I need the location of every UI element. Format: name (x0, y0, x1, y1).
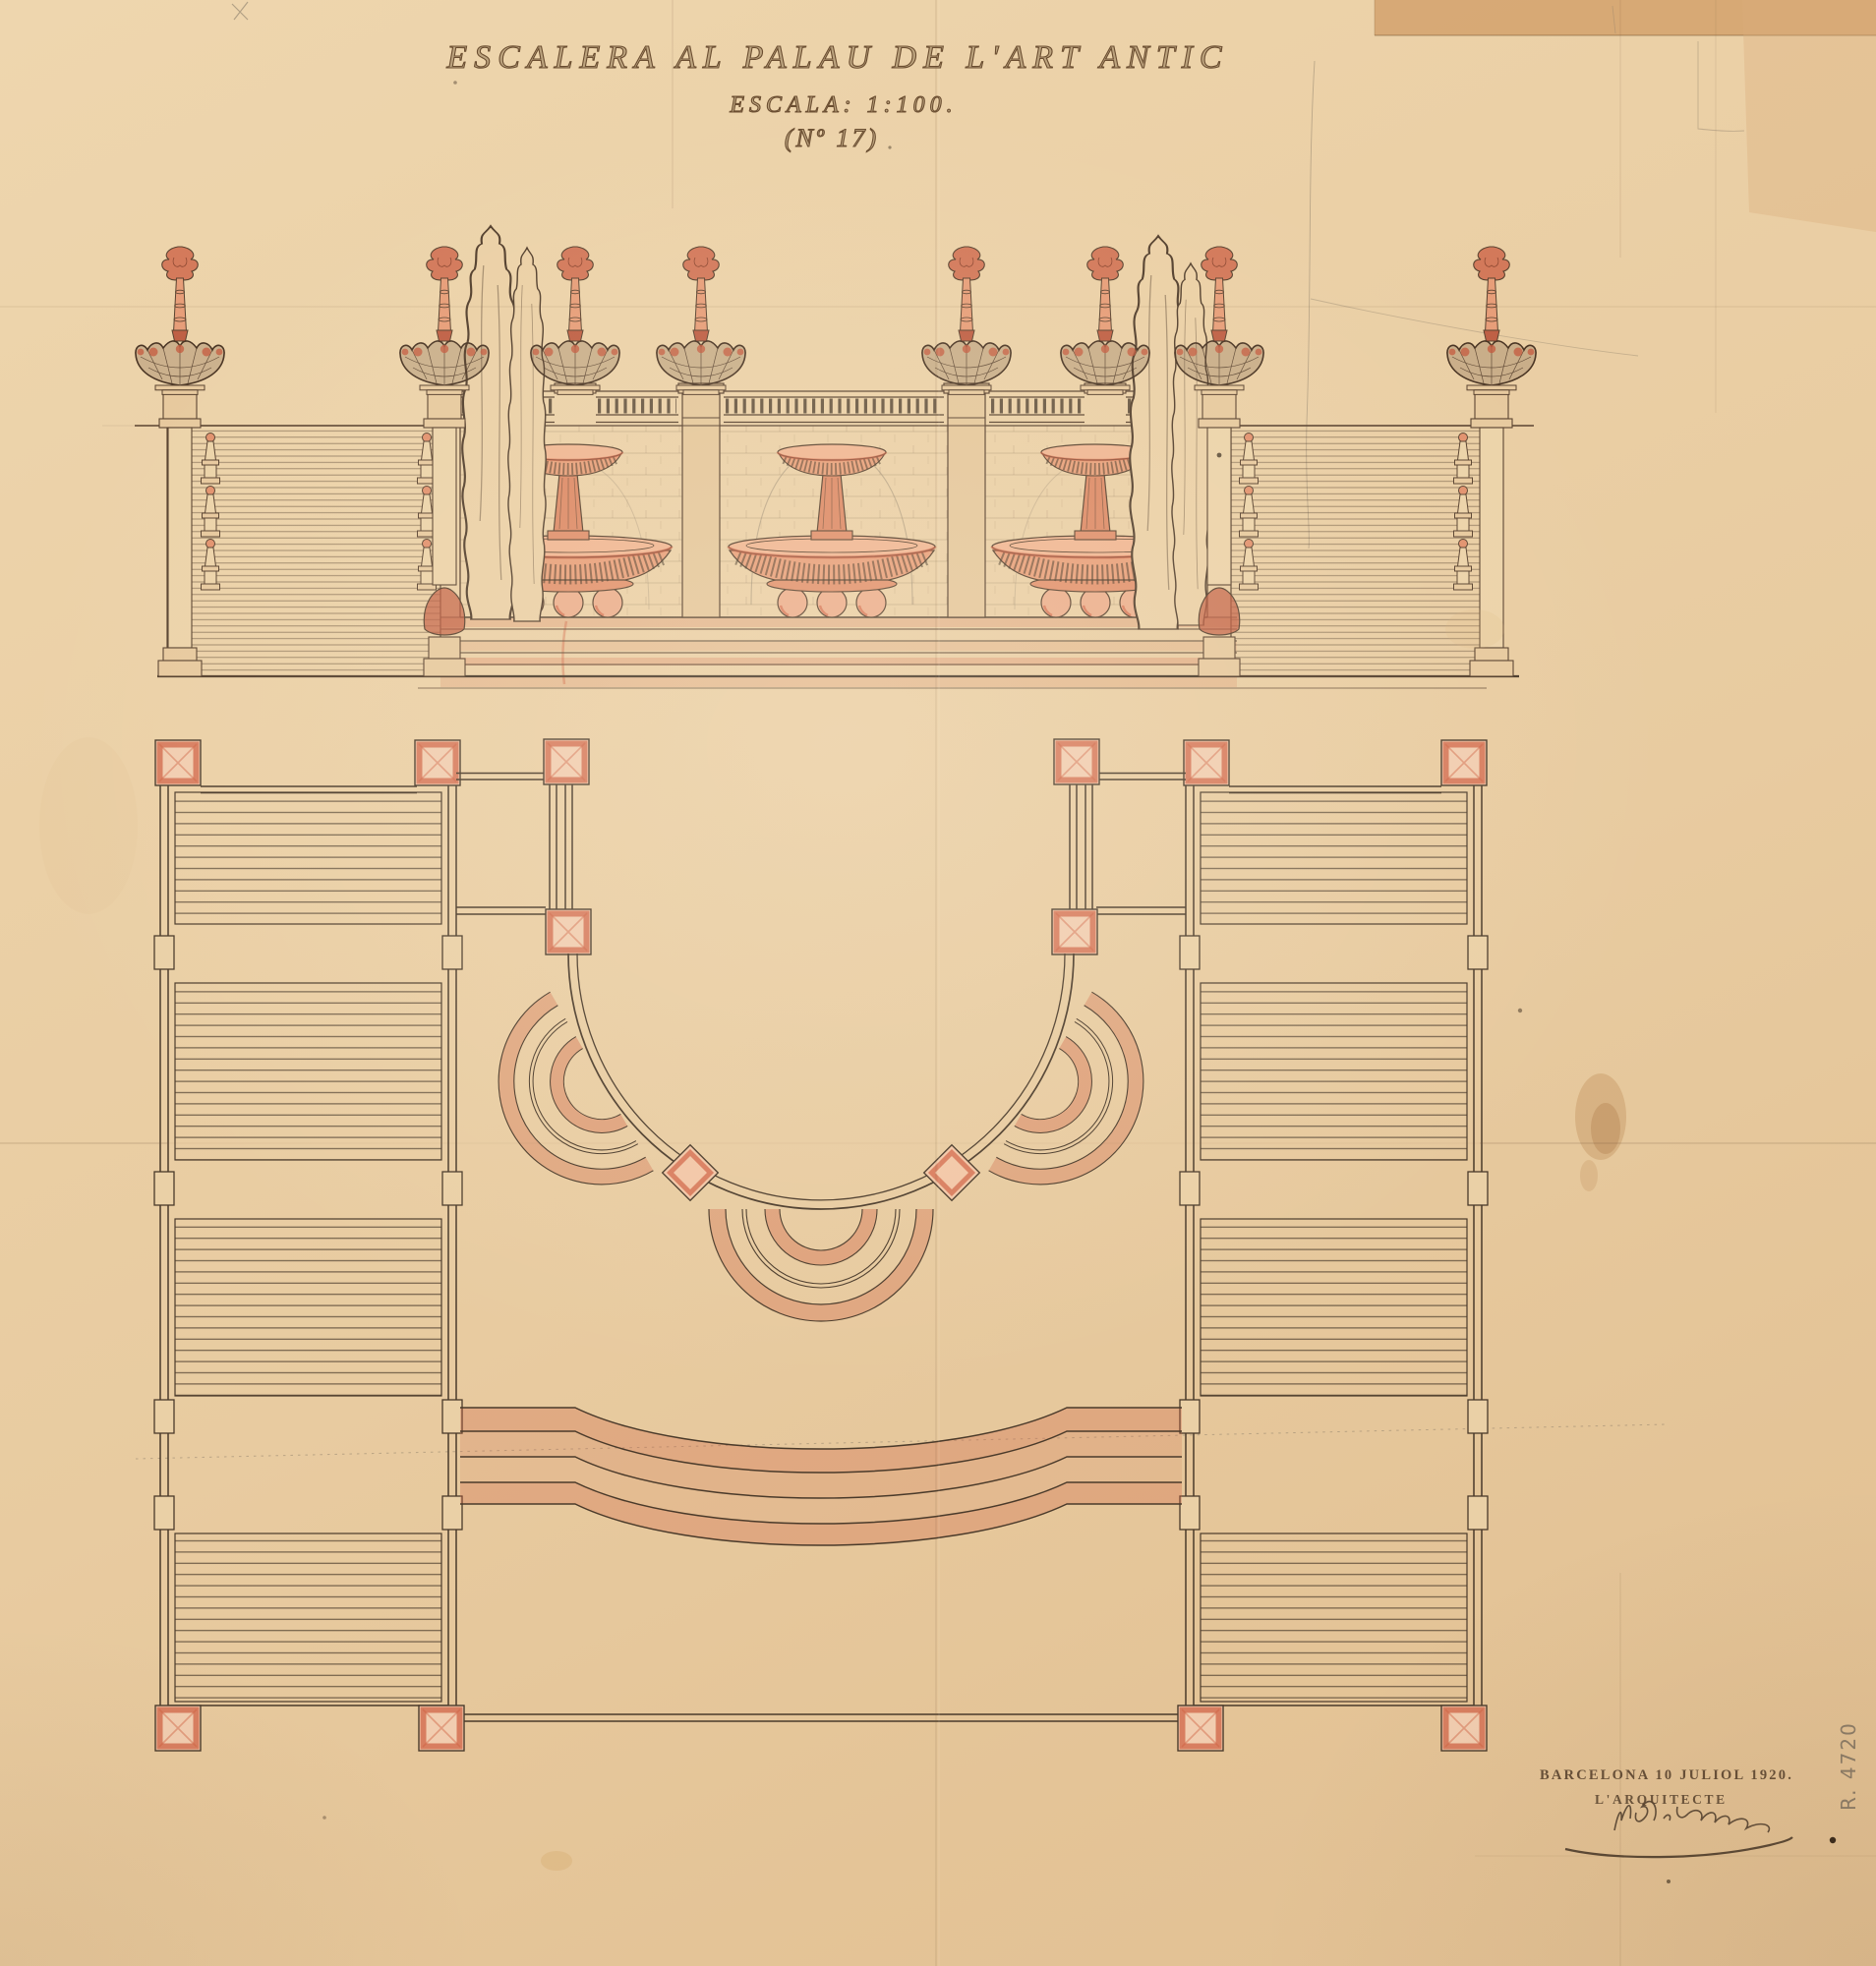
sheet-number: (Nº 17) (785, 124, 879, 153)
scale-label: ESCALA: 1:100. (730, 92, 957, 119)
balustrade (460, 391, 1207, 423)
page-title: ESCALERA AL PALAU DE L'ART ANTIC (446, 39, 1228, 77)
fountain-basins-plan (461, 992, 1182, 1321)
archive-ref-note: R. 4720 (1837, 1721, 1860, 1811)
curved-steps-plan (460, 1408, 1182, 1545)
candelabra (136, 247, 1536, 394)
elevation-view (135, 226, 1536, 688)
drawing-canvas (0, 0, 1876, 1966)
plan-bottom-rail (464, 1714, 1178, 1721)
paper-sheet: ESCALERA AL PALAU DE L'ART ANTIC ESCALA:… (0, 0, 1876, 1966)
architect-label: L'ARQUITECTE (1595, 1792, 1728, 1808)
signature-stroke (1565, 1802, 1792, 1858)
exedra-neck (456, 774, 1186, 915)
place-date-label: BARCELONA 10 JULIOL 1920. (1540, 1767, 1793, 1784)
stairs-right-plan (1178, 740, 1488, 1751)
stairs-left-plan (154, 740, 464, 1751)
paper-patch (1375, 0, 1876, 232)
plan-view (154, 739, 1488, 1751)
